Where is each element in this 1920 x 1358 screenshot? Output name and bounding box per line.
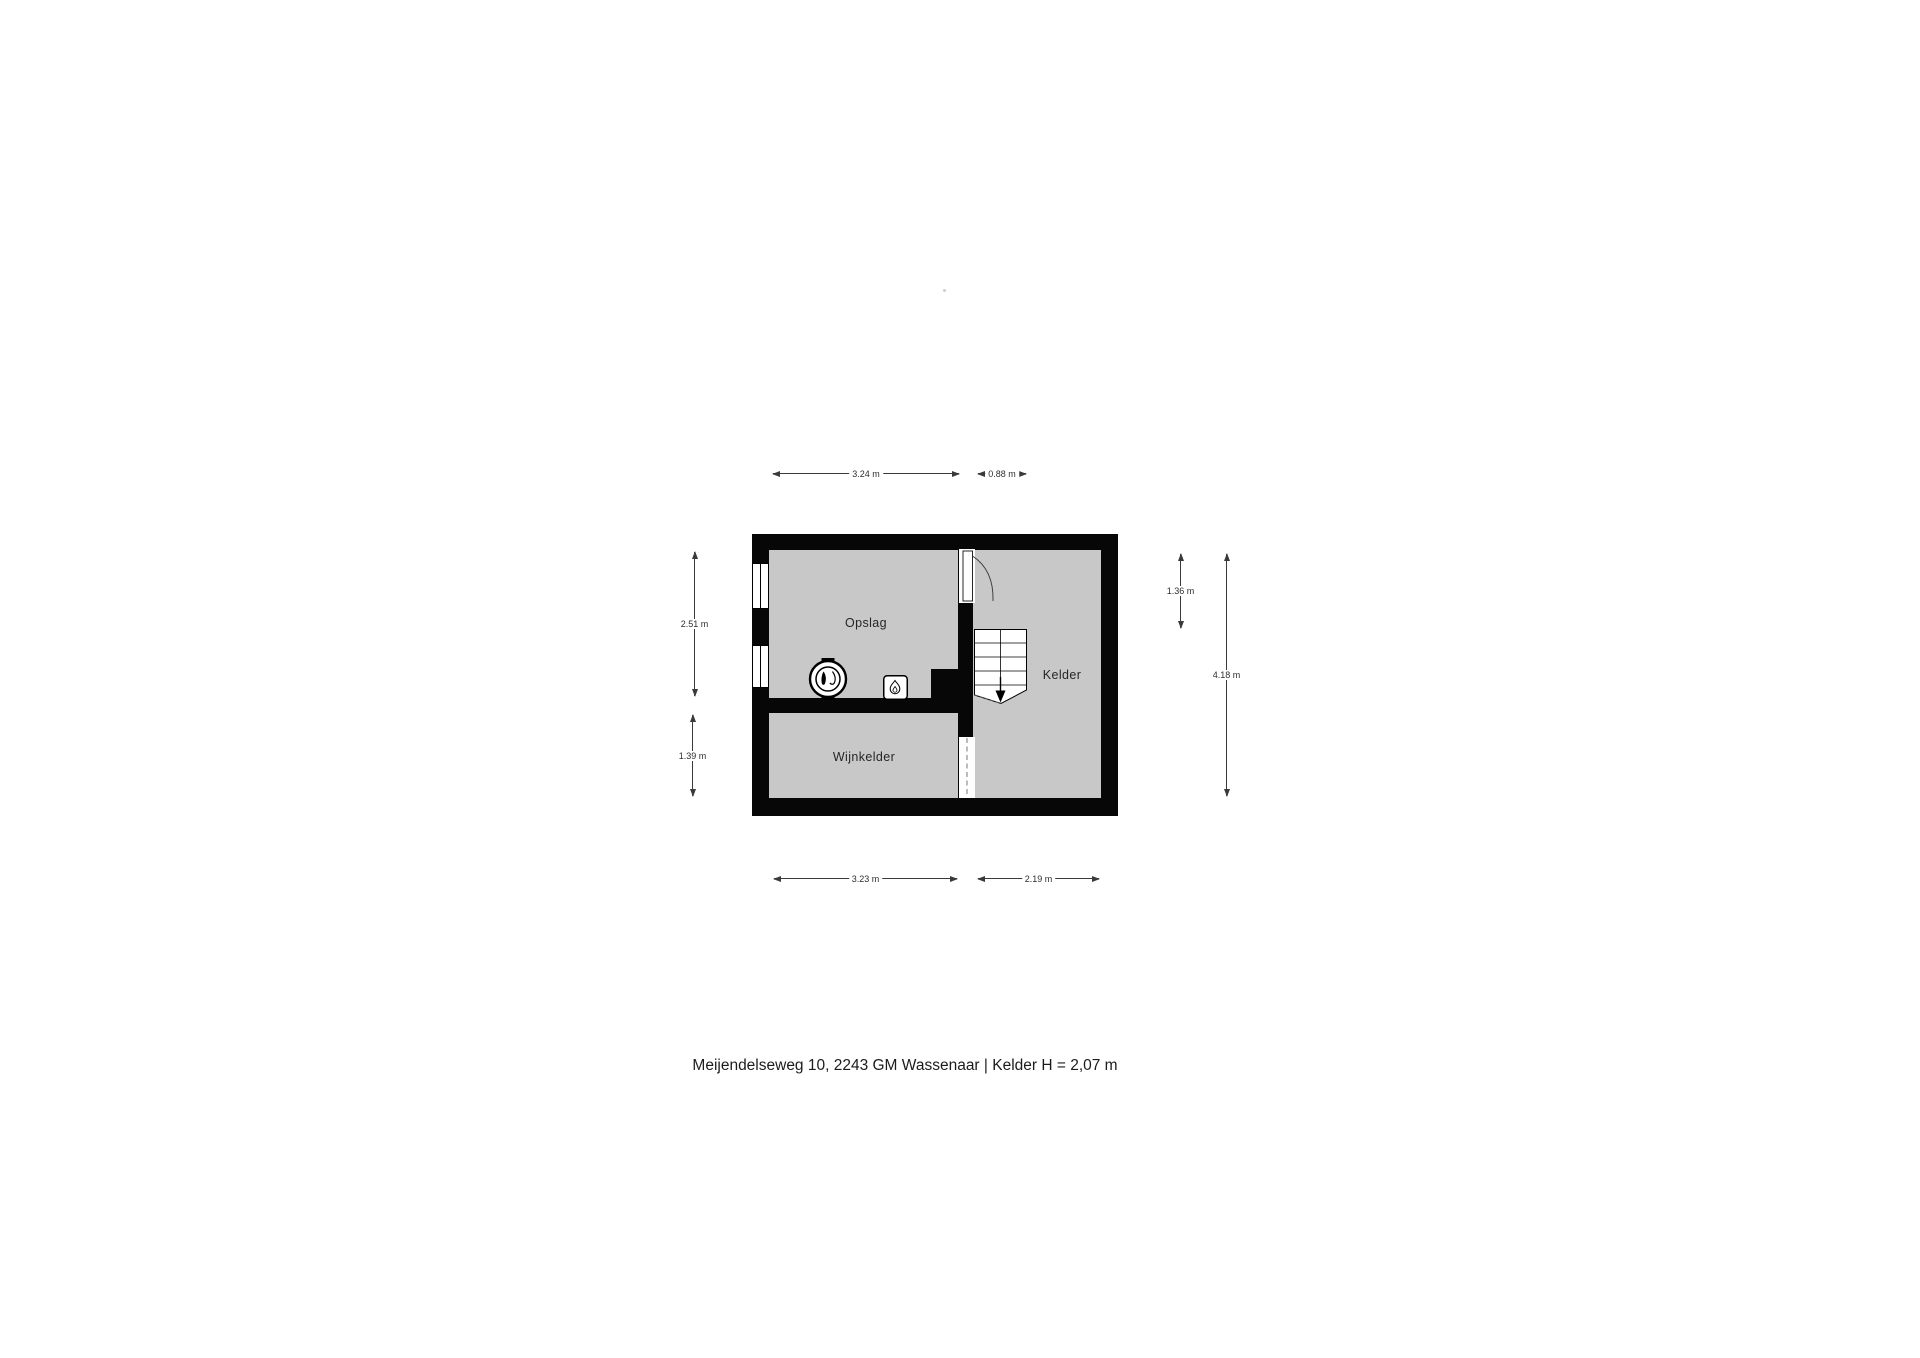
arrow-left-icon [773, 876, 781, 882]
arrow-up-icon [1178, 553, 1184, 561]
arrow-right-icon [952, 471, 960, 477]
dimension-label: 0.88 m [985, 469, 1019, 479]
floor-plan: Opslag Kelder Wijnkelder [752, 534, 1118, 816]
arrow-right-icon [1092, 876, 1100, 882]
floor-plan-page: Opslag Kelder Wijnkelder 3.24 m 0.88 m 3… [0, 0, 1920, 1358]
dimension-label: 2.51 m [678, 619, 712, 629]
window-icon [752, 563, 769, 609]
interior-wall-stub [931, 669, 973, 698]
room-label-opslag: Opslag [845, 616, 887, 630]
artifact-dot [943, 289, 946, 292]
arrow-down-icon [1224, 789, 1230, 797]
arrow-left-icon [977, 471, 985, 477]
dimension-left-wijnkelder-height: 1.39 m [688, 714, 697, 797]
door-opening [959, 549, 975, 603]
arrow-up-icon [690, 714, 696, 722]
dimension-right-kelder-height: 4.18 m [1222, 553, 1231, 797]
room-label-wijnkelder: Wijnkelder [833, 750, 895, 764]
room-label-kelder: Kelder [1043, 668, 1082, 682]
dimension-label: 4.18 m [1210, 670, 1244, 680]
arrow-down-icon [1178, 621, 1184, 629]
arrow-up-icon [1224, 553, 1230, 561]
dimension-label: 1.36 m [1164, 586, 1198, 596]
dimension-top-opslag-width: 3.24 m [772, 469, 960, 478]
dimension-right-entry-height: 1.36 m [1176, 553, 1185, 629]
room-kelder [973, 550, 1101, 798]
address-caption: Meijendelseweg 10, 2243 GM Wassenaar | K… [692, 1057, 1117, 1075]
dimension-bottom-kelder-width: 2.19 m [977, 874, 1100, 883]
arrow-left-icon [772, 471, 780, 477]
passage-opening [959, 737, 975, 798]
dimension-label: 2.19 m [1022, 874, 1056, 884]
dimension-left-opslag-height: 2.51 m [690, 551, 699, 697]
window-pane [760, 646, 761, 687]
window-icon [752, 645, 769, 688]
dimension-label: 3.23 m [849, 874, 883, 884]
dimension-label: 1.39 m [676, 751, 710, 761]
dimension-top-stairs-width: 0.88 m [977, 469, 1027, 478]
arrow-right-icon [950, 876, 958, 882]
arrow-left-icon [977, 876, 985, 882]
arrow-down-icon [692, 689, 698, 697]
arrow-down-icon [690, 789, 696, 797]
dimension-label: 3.24 m [849, 469, 883, 479]
arrow-up-icon [692, 551, 698, 559]
window-pane [760, 564, 761, 608]
dimension-bottom-wijnkelder-width: 3.23 m [773, 874, 958, 883]
arrow-right-icon [1019, 471, 1027, 477]
